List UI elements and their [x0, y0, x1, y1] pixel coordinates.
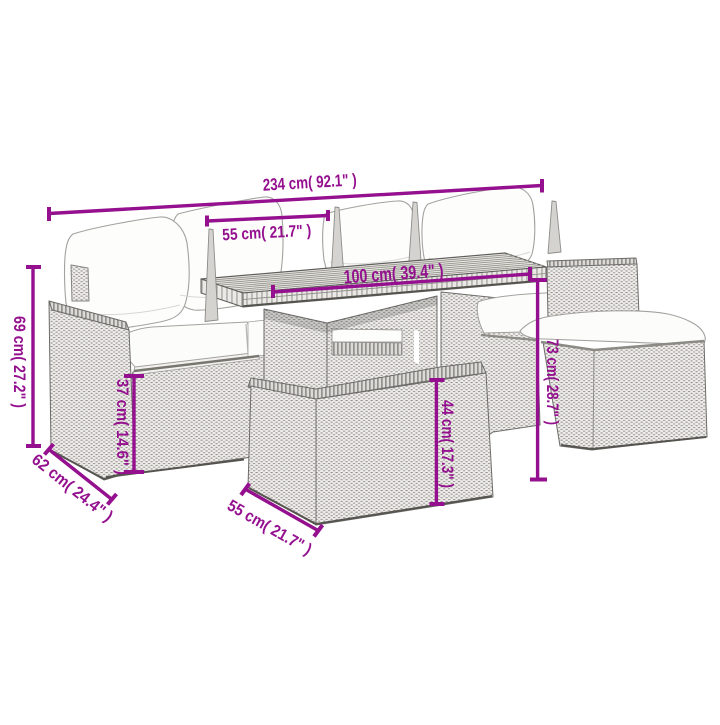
svg-text:37 cm( 14.6" ): 37 cm( 14.6" ): [113, 379, 131, 475]
svg-text:73 cm( 28.7" ): 73 cm( 28.7" ): [543, 339, 561, 425]
svg-text:69 cm( 27.2" ): 69 cm( 27.2" ): [10, 316, 28, 408]
svg-text:44 cm( 17.3" ): 44 cm( 17.3" ): [438, 400, 456, 488]
